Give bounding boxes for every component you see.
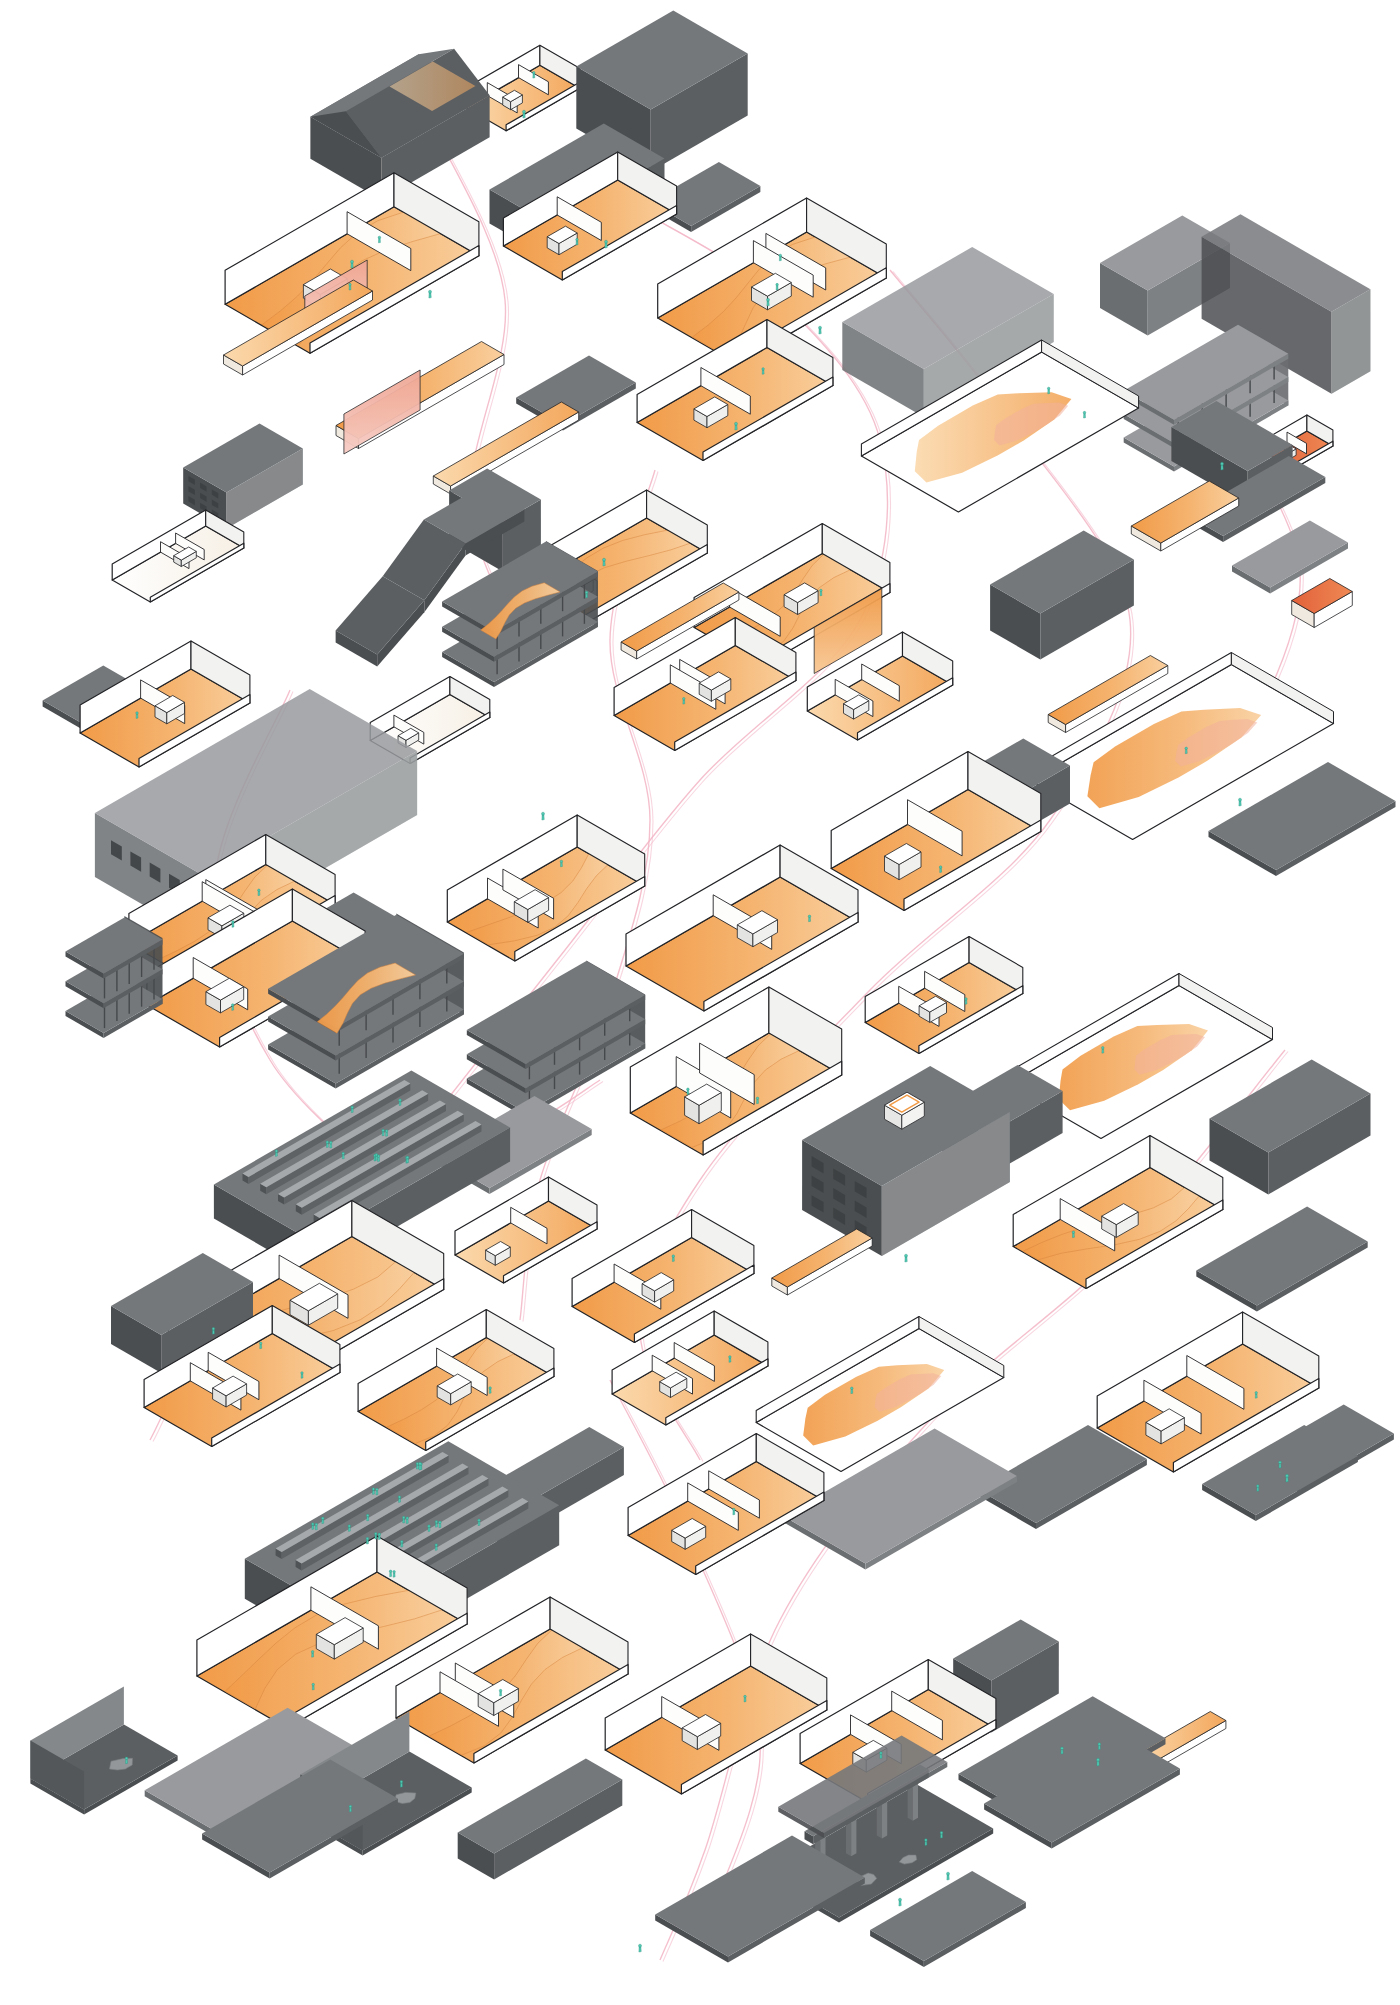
scale-figure [947,1872,950,1880]
scale-figure [330,1141,333,1148]
scale-figure [342,1152,345,1159]
scale-figure [1257,1485,1260,1492]
scale-figure [478,1519,481,1526]
scale-figure [744,1695,747,1702]
scale-figure [406,1156,409,1163]
fragment-shell [637,320,833,461]
exploded-axonometric-canvas [0,0,1400,2005]
scale-figure [385,1130,388,1137]
scale-figure [351,260,354,268]
fragment-mass [1210,1060,1371,1195]
scale-figure [585,591,588,598]
scale-figure [729,1356,732,1363]
scale-figure [899,1898,902,1906]
scale-figure [542,812,545,820]
scale-figure [435,1544,438,1551]
scale-figure [400,1781,403,1788]
fragment-panel [344,370,420,454]
scale-figure [406,1517,409,1524]
scale-figure [489,1387,492,1394]
scale-figure [136,712,139,719]
scale-figure [733,1508,736,1515]
scale-figure [1239,798,1242,806]
scale-figure [378,236,381,243]
scale-figure [398,1496,401,1503]
scale-figure [351,1106,354,1113]
scale-figure [259,1342,262,1349]
scale-figure [1061,1747,1064,1754]
scale-figure [377,1155,380,1162]
scale-figure [439,1521,442,1528]
scale-figure [275,1150,278,1157]
scale-figure [560,860,563,867]
scale-figure [349,1805,352,1812]
scale-figure [762,368,765,375]
scale-figure [925,1839,928,1846]
scale-figure [348,1525,351,1532]
scale-figure [326,1141,329,1148]
scale-figure [375,1154,378,1161]
scale-figure [212,1328,215,1335]
scale-figure [776,283,779,290]
scale-figure [756,1097,759,1104]
scale-figure [399,1099,402,1106]
fragment-shell [630,987,841,1155]
scale-figure [820,589,823,596]
fragment-win [802,1066,1010,1256]
fragment-shell [628,1434,824,1575]
fragment-shell [455,1177,597,1283]
scale-figure [1072,1231,1075,1238]
scale-figure [389,1570,392,1577]
fragment-shell [358,1310,554,1451]
scale-figure [940,1831,943,1838]
scale-figure [231,1004,234,1011]
fragment-shell [112,510,244,602]
fragment-tower [66,916,163,1038]
scale-figure [1286,1474,1289,1482]
scale-figure [965,998,968,1005]
fragment-shell [626,845,858,1011]
scale-figure [372,1488,375,1495]
scale-figure [382,1129,385,1136]
scale-figure [366,1537,369,1544]
scale-figure [401,1540,404,1547]
fragment-bar [772,1229,872,1295]
scale-figure [311,1651,314,1658]
scale-figure [301,1372,304,1379]
fragment-tower [467,961,645,1118]
fragment-mass [458,1759,623,1880]
fragment-slab [1196,1207,1367,1312]
scale-figure [767,298,770,306]
scale-figure [366,1514,369,1521]
scale-figure [735,422,738,430]
fragment-shell [447,815,644,961]
fragment-mass [990,531,1134,660]
scale-figure [258,889,261,896]
drawing-sheet [0,0,1400,2005]
scale-figure [312,1683,315,1690]
scale-figure [125,1757,128,1764]
scale-figure [378,1533,381,1540]
scale-figure [576,238,579,245]
scale-figure [232,921,235,928]
scale-figure [315,1523,318,1530]
scale-figure [322,1517,325,1524]
scale-figure [905,1254,908,1262]
scale-figure [1185,747,1188,754]
scale-figure [416,1462,419,1469]
scale-figure [428,1525,431,1532]
scale-figure [683,697,686,704]
scale-figure [533,71,536,78]
scale-figure [779,254,782,261]
scale-figure [1102,1047,1105,1054]
scale-figure [639,1944,642,1952]
fragment-shell [831,752,1041,911]
scale-figure [1279,1461,1282,1468]
scale-figure [1255,1392,1258,1399]
scale-figure [880,1752,883,1759]
scale-figure [939,866,942,873]
fragment-field [30,11,1395,1968]
fragment-shell [605,1634,827,1794]
scale-figure [808,915,811,922]
scale-figure [672,1255,675,1262]
scale-figure [605,240,608,248]
scale-figure [1083,411,1086,418]
scale-figure [393,1571,396,1578]
scale-figure [1098,1743,1101,1750]
fragment-shell [1013,1136,1223,1289]
fragment-shell [865,937,1023,1054]
scale-figure [523,110,526,118]
scale-figure [819,326,822,334]
scale-figure [419,1462,422,1470]
scale-figure [1221,462,1224,470]
scale-figure [312,1523,315,1530]
scale-figure [349,283,352,290]
scale-figure [1097,1758,1100,1766]
scale-figure [375,1532,378,1539]
scale-figure [402,1516,405,1523]
scale-figure [376,1488,379,1495]
scale-figure [1047,387,1050,394]
scale-figure [499,1689,502,1696]
scale-figure [851,1387,854,1394]
scale-figure [429,290,432,298]
scale-figure [603,558,606,566]
scale-figure [687,1088,690,1095]
scale-figure [435,1521,438,1528]
fragment-bar [1292,579,1353,628]
fragment-tower [442,541,598,687]
